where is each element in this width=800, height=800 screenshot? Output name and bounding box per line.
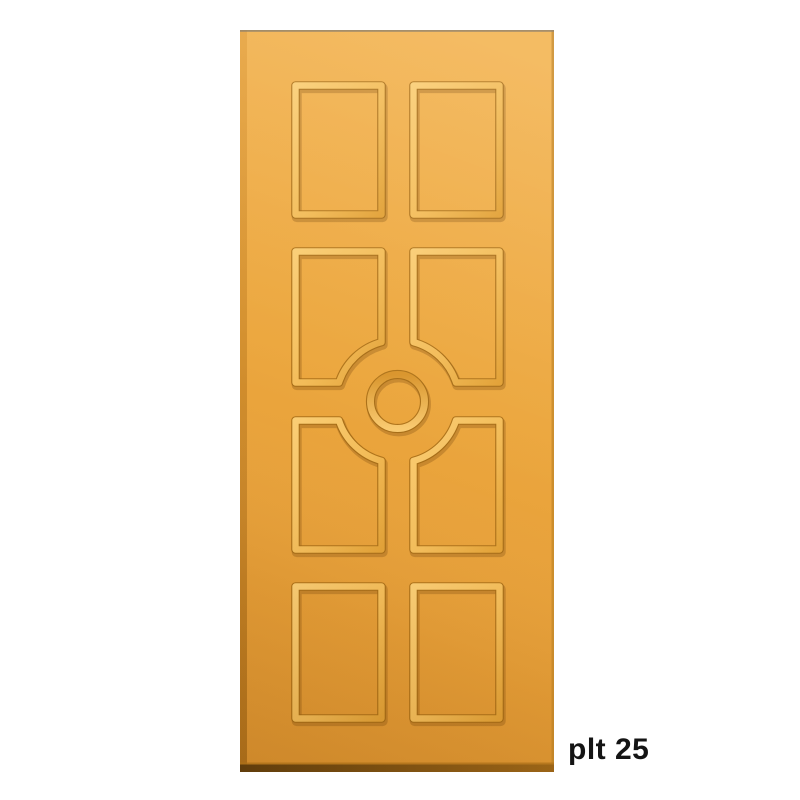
caption-label: plt 25	[568, 733, 649, 767]
sheen-overlay	[240, 30, 554, 772]
door-graphic	[0, 0, 800, 800]
product-image-canvas: plt 25	[0, 0, 800, 800]
